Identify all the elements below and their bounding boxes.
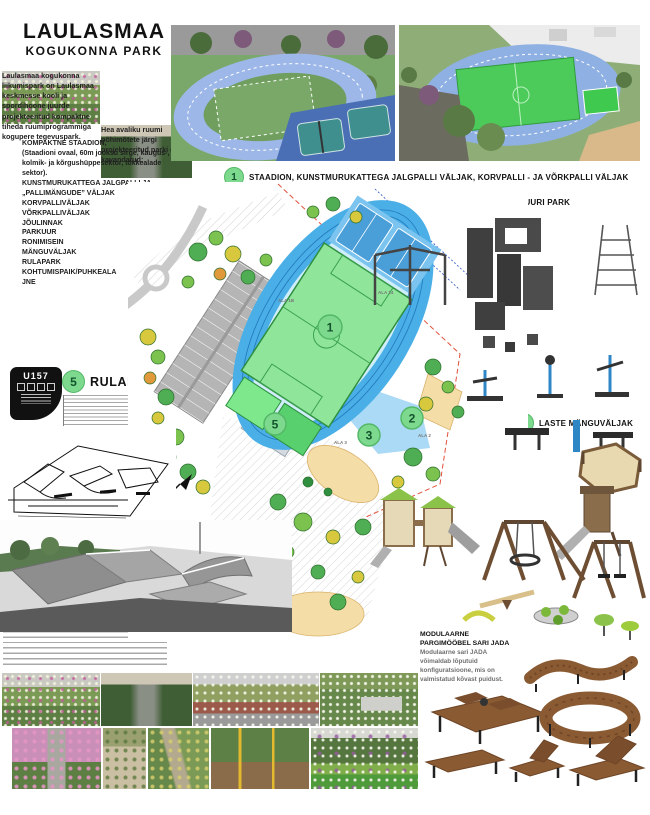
project-code-badge: U157 xyxy=(10,367,62,420)
photo-flower-meadow xyxy=(2,673,100,726)
s-curve-bench xyxy=(530,662,632,692)
furniture-heading-line1: MODULAARNE xyxy=(420,630,530,639)
photo-blossom-trees xyxy=(12,728,101,789)
section-label-text: STAADION, KUNSTMURUKATTEGA JALGPALLI VÄL… xyxy=(249,173,629,182)
chaise-lounger xyxy=(510,740,564,782)
photo-stone-bench xyxy=(320,673,418,726)
parkour-blocks xyxy=(467,218,553,352)
flat-lounger xyxy=(426,750,504,778)
play-complex xyxy=(370,488,480,568)
svg-text:5: 5 xyxy=(272,418,279,432)
platform-bench xyxy=(432,692,546,744)
svg-text:ALA 1B: ALA 1B xyxy=(278,298,295,303)
badge-glyph-icon xyxy=(27,383,35,391)
badge-icons xyxy=(10,383,62,391)
skatepark-drawing xyxy=(8,426,176,521)
balance-rocker xyxy=(464,613,494,620)
badge-glyph-icon xyxy=(17,383,25,391)
skatepark-render xyxy=(0,520,292,632)
stadium-render-east xyxy=(399,25,640,161)
badge-glyph-icon xyxy=(47,383,55,391)
photo-hammock-playground xyxy=(211,728,309,789)
seesaw xyxy=(480,592,534,610)
carousel xyxy=(534,605,578,625)
project-code: U157 xyxy=(10,371,62,381)
spring-riders xyxy=(594,614,639,640)
photo-park-path xyxy=(148,728,209,789)
flat-swings xyxy=(574,542,644,598)
intro-paragraph-1: Laulasmaa kogukonna liikumispark on Laul… xyxy=(2,71,100,124)
feature-item: (Staadioni ovaal, 60m jooksu sirge, kaug… xyxy=(22,149,174,179)
svg-text:ALA 3: ALA 3 xyxy=(334,440,347,445)
photo-street-planting xyxy=(193,673,319,726)
stadium-render-west xyxy=(171,25,395,161)
page-subtitle: KOGUKONNA PARK xyxy=(14,44,174,58)
badge-microtext xyxy=(21,394,51,404)
marker-5-badge: 5 xyxy=(62,370,85,393)
photo-perennial-border xyxy=(311,728,418,789)
presentation-board: LAULASMAA KOGUKONNA PARK Laulasmaa koguk… xyxy=(0,0,650,815)
photo-gravel-garden xyxy=(103,728,146,789)
climbing-frames xyxy=(595,225,637,295)
playground-equipment-renders xyxy=(368,430,650,645)
page-title: LAULASMAA xyxy=(14,20,174,44)
feature-item: KOMPAKTNE STAADION, xyxy=(22,139,174,149)
svg-text:1: 1 xyxy=(327,321,334,335)
pullup-frame xyxy=(375,245,445,305)
badge-glyph-icon xyxy=(37,383,45,391)
furniture-renders xyxy=(418,640,648,792)
photo-tree-path xyxy=(101,673,192,726)
